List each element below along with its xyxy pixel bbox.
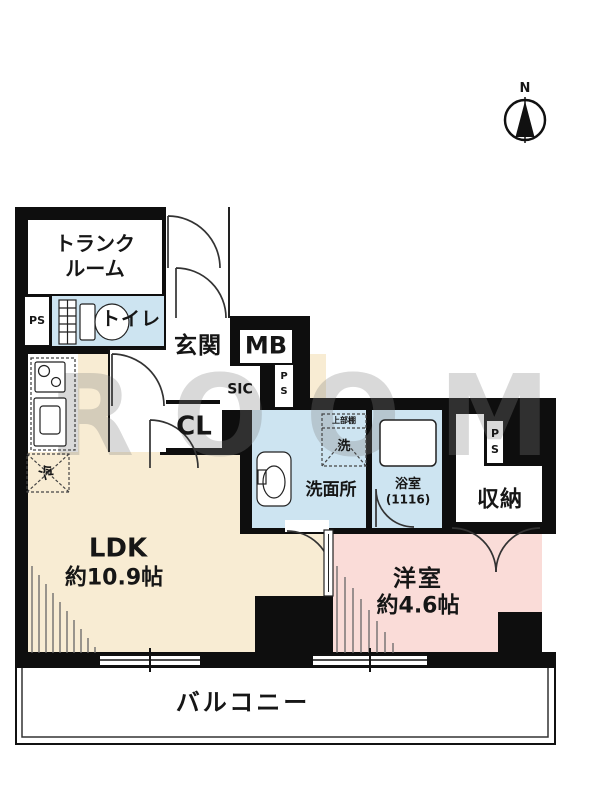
western-name-label: 洋室 [393, 567, 443, 591]
ps-mid-label-s: S [280, 387, 287, 398]
trunk-room-label-2: ルーム [65, 259, 124, 280]
ldk-name-label: LDK [89, 535, 147, 562]
floor-plan: ROOM [0, 0, 600, 800]
trunk-room-label-1: トランク [55, 234, 135, 255]
shoe-closet-label: SIC [227, 383, 253, 398]
north-compass-icon [505, 97, 545, 143]
closet-door-left-arc [452, 528, 496, 572]
laundry-label: 洗 [337, 440, 350, 454]
western-size-label: 約4.6帖 [377, 594, 460, 617]
washroom-label: 洗面所 [306, 482, 357, 500]
window-glass-lines [100, 648, 427, 672]
trunk-door-arc [168, 216, 220, 268]
ps-left-label: PS [29, 315, 45, 327]
entrance-door-arc [176, 268, 226, 318]
ps-mid-label-p: P [280, 372, 287, 383]
toilet-label: トイレ [101, 310, 161, 330]
floorplan-graphics [0, 0, 600, 800]
bath-name-label: 浴室 [395, 478, 421, 492]
bathtub-icon [380, 420, 436, 466]
washbasin-icon [257, 452, 291, 506]
balcony-label: バルコニー [176, 690, 311, 715]
ps-right-label-s: S [491, 444, 499, 456]
closet-label: CL [176, 413, 212, 440]
storage-label: 収納 [477, 488, 523, 511]
meter-box-label: MB [245, 333, 287, 358]
stove-icon [35, 362, 65, 392]
ldk-size-label: 約10.9帖 [65, 566, 163, 589]
ldk-door-arc [112, 354, 164, 406]
entrance-label: 玄関 [174, 334, 222, 358]
ps-right-label-p: P [491, 428, 499, 440]
compass-north-label: N [520, 82, 531, 96]
laundry-shelf-label: 上部棚 [332, 417, 356, 425]
sliding-door [324, 530, 333, 596]
closet-door-right-arc [496, 528, 540, 572]
bath-size-label: (1116) [386, 494, 430, 507]
sink-icon [34, 398, 66, 446]
